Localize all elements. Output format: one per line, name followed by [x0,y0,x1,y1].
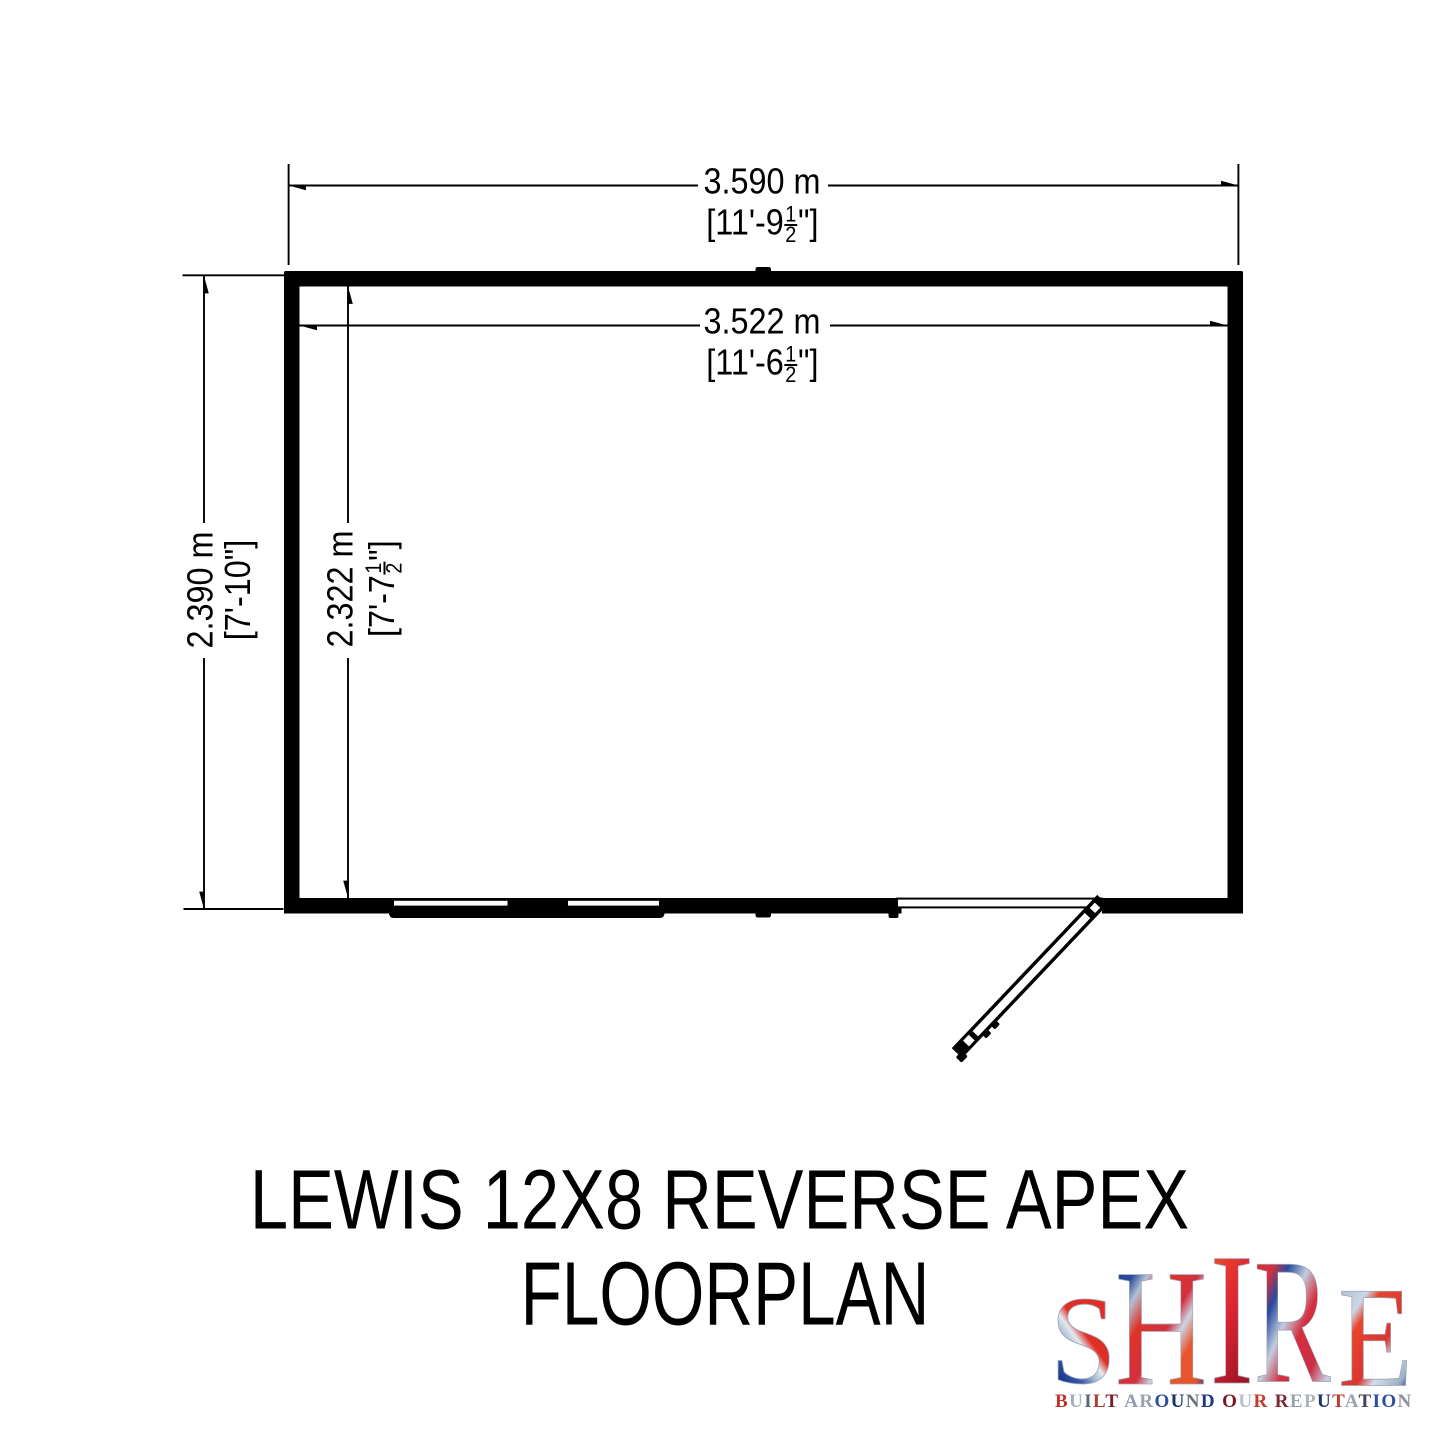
svg-text:2: 2 [383,563,407,574]
svg-text:[11'-9: [11'-9 [706,203,784,243]
svg-text:2: 2 [785,363,796,387]
svg-text:[11'-6: [11'-6 [706,343,784,383]
svg-text:2: 2 [785,223,796,247]
svg-text:BUILT AROUND OUR REPUTATION: BUILT AROUND OUR REPUTATION [1055,1391,1413,1412]
svg-text:2.390 m: 2.390 m [181,531,221,648]
svg-text:3.522 m: 3.522 m [703,302,820,342]
svg-text:[7'-10"]: [7'-10"] [218,540,258,641]
svg-text:FLOORPLAN: FLOORPLAN [521,1243,930,1344]
svg-text:[7'-7: [7'-7 [362,575,402,637]
svg-text:"]: "] [798,343,819,383]
svg-text:"]: "] [362,540,402,561]
svg-text:3.590 m: 3.590 m [703,162,820,202]
svg-text:2.322 m: 2.322 m [321,530,361,647]
svg-text:LEWIS 12X8 REVERSE APEX: LEWIS 12X8 REVERSE APEX [250,1154,1189,1247]
svg-text:"]: "] [798,203,819,243]
svg-text:S: S [1050,1270,1117,1410]
